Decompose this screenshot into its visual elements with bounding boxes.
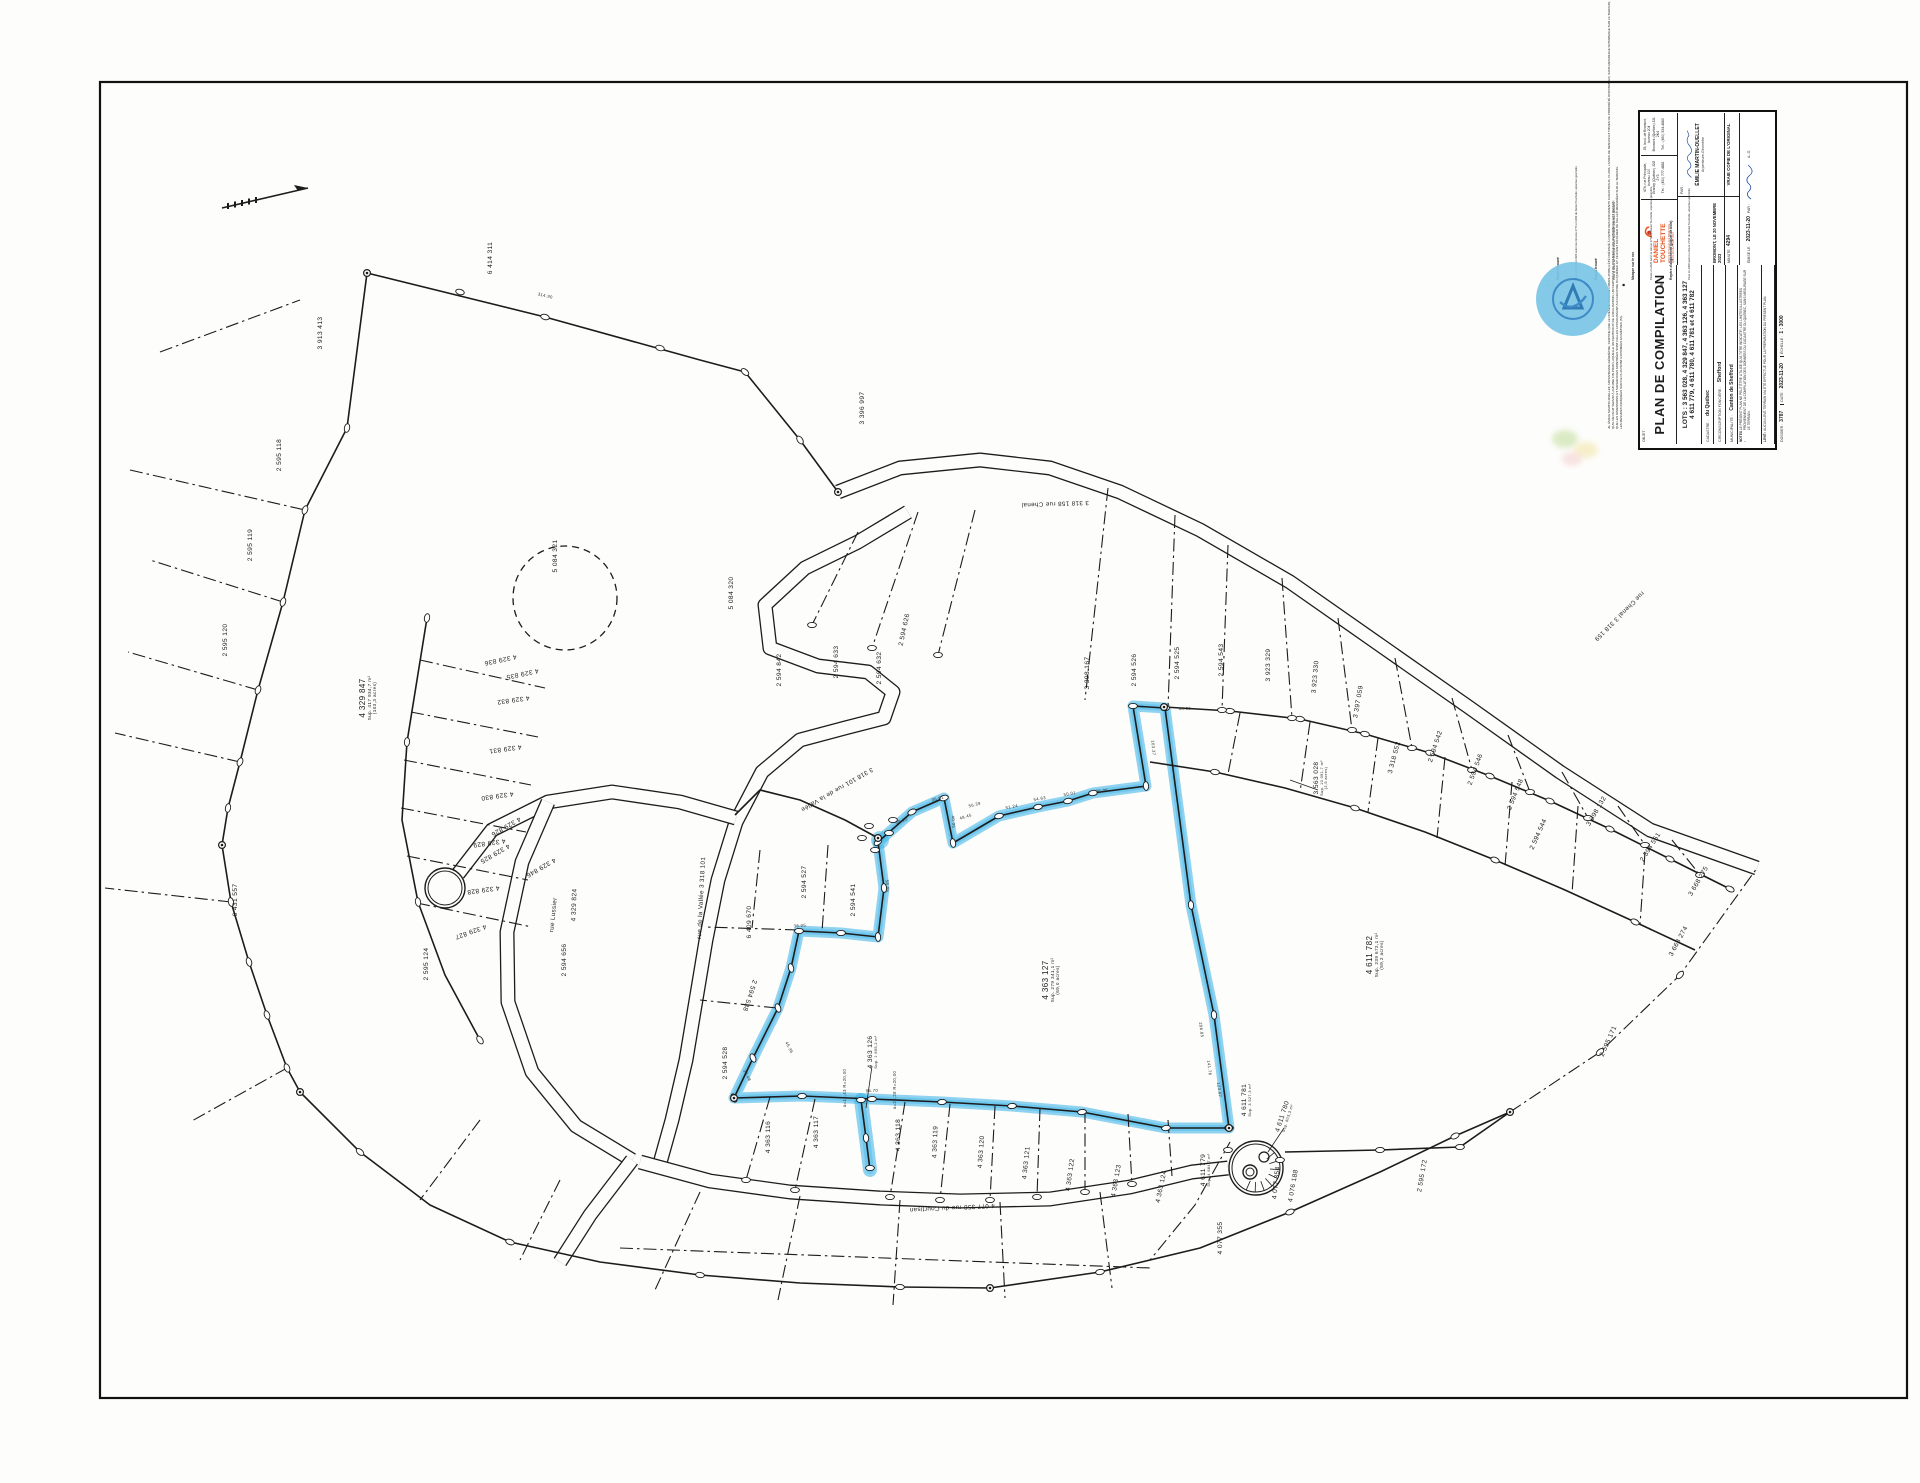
survey-marker <box>934 652 943 657</box>
survey-marker <box>808 622 817 627</box>
lot-number-label: 2 594 842 <box>776 654 783 687</box>
road-surface <box>560 1160 632 1262</box>
legend-item-note: Posé en 2008 selon la minute 2744 de Dan… <box>1688 188 1691 280</box>
lot-number-label: 3 398 167 <box>1084 657 1091 690</box>
lot-number-label: 3 397 059 <box>1352 685 1365 719</box>
boundary-line <box>1150 762 1695 950</box>
survey-marker <box>1295 716 1304 722</box>
lot-number-label: 2 594 543 <box>1218 644 1225 677</box>
survey-marker <box>1225 708 1234 714</box>
highlighted-parcel-outline-core <box>734 706 1229 1128</box>
lot-line-dashdot <box>105 888 231 902</box>
emise-date: 2023-11-20 <box>1746 216 1752 241</box>
survey-post-dot <box>1228 1127 1231 1130</box>
lot-number-label: 2 594 526 <box>1131 654 1138 687</box>
survey-marker <box>1224 1147 1233 1152</box>
lot-line-dashdot <box>128 652 258 690</box>
survey-marker <box>1210 769 1219 775</box>
cadastre-label: CADASTRE : <box>1706 420 1710 442</box>
lot-number-label: 4 363 118 <box>895 1119 902 1151</box>
lot-line-dashdot <box>1228 713 1240 774</box>
survey-post-dot <box>733 1097 736 1100</box>
lot-number-label: 4 363 121 <box>1021 1146 1031 1179</box>
lot-number-label: 2 594 542 <box>1427 730 1444 763</box>
lot-line-dashdot <box>990 1106 995 1200</box>
measurement-label: 94.70 <box>866 1088 879 1093</box>
circonscription-label: CIRCONSCRIPTION FONCIÈRE : <box>1718 387 1722 442</box>
lot-number-label: 6 414 311 <box>487 242 494 274</box>
lot-number-label: 6 431 557 <box>232 884 239 917</box>
lot-number-label: 4 363 117 <box>813 1116 820 1148</box>
lot-line-dashdot <box>115 733 240 762</box>
lots-line1: 3 563 028, 4 329 847, 4 363 126, 4 363 1… <box>1682 281 1689 405</box>
lot-line-dashdot <box>655 1192 700 1290</box>
survey-marker <box>1665 855 1675 864</box>
boundary-line <box>799 842 884 937</box>
survey-post-dot <box>366 272 369 275</box>
lot-line-dashdot <box>160 300 300 352</box>
lot-number-label: 4 611 781Sup. 3 527,3 m² <box>1241 1083 1252 1116</box>
survey-marker <box>1485 772 1495 780</box>
lot-line-dashdot <box>1300 722 1310 792</box>
cul-de-sac-circle <box>425 868 465 908</box>
lot-number-label: 2 595 120 <box>222 624 229 657</box>
survey-marker <box>1129 703 1138 708</box>
boundary-line <box>402 618 480 1040</box>
measurement-label: 123.07 <box>1216 1082 1223 1098</box>
lot-number-label: 2 594 538 <box>741 979 758 1012</box>
lot-number-label: 2 594 544 <box>1529 818 1549 851</box>
plan-title: PLAN DE COMPILATION <box>1652 265 1676 444</box>
survey-post-dot <box>989 1287 992 1290</box>
emise-label: ÉMISE LE : <box>1747 244 1751 263</box>
lot-line-dashdot <box>190 1068 287 1122</box>
emise-suffix: A.-G. <box>1747 150 1751 158</box>
municipalite-value: Canton de Shefford <box>1729 364 1735 410</box>
survey-marker <box>1077 1109 1086 1115</box>
watermark-leaf-pink <box>1562 452 1582 466</box>
certification-paragraph: JE, ÉMILIE MARTIN-OUELLET, ARPENTEURE-GÉ… <box>1608 113 1640 429</box>
survey-marker <box>1605 825 1615 833</box>
lot-number-label: 3 668 274 <box>1668 925 1690 957</box>
lot-number-label: 4 611 779Sup. 4 684,7 m² <box>1200 1153 1211 1186</box>
dossier-label: DOSSIER : <box>1780 422 1784 444</box>
circonscription-value: Shefford <box>1717 362 1723 383</box>
survey-marker <box>791 1187 800 1192</box>
lot-number-label: 4 363 127Sup. 279 341,1 m²(69,0 acres) <box>1041 958 1060 1003</box>
survey-marker <box>404 737 410 746</box>
survey-marker <box>1218 707 1227 712</box>
survey-marker <box>1350 804 1360 811</box>
date-value: 2023-11-20 <box>1779 363 1785 388</box>
street-name-label: rue Lussier <box>548 897 559 933</box>
minute-value: 4294 <box>1726 235 1732 246</box>
survey-marker <box>1007 1103 1016 1109</box>
survey-marker <box>1360 731 1370 738</box>
survey-marker <box>858 835 867 840</box>
survey-marker <box>1450 1132 1460 1141</box>
lots-label: LOTS : <box>1682 407 1689 428</box>
survey-marker <box>863 1133 869 1142</box>
leve-text: AUCUN LEVÉ TERRAIN N'A ÉTÉ EFFECTUÉ POUR… <box>1763 296 1773 431</box>
measurement-label: 141.76 <box>1206 1060 1213 1076</box>
lot-number-label: 4 329 832 <box>496 694 530 706</box>
survey-marker <box>225 803 232 813</box>
pond-outline <box>513 546 617 650</box>
lot-line-dashdot <box>1282 578 1292 718</box>
lot-number-label: 5 084 321 <box>552 540 559 573</box>
certification-line: LES MESURES INDIQUÉES SUR CE PLAN SONT E… <box>1620 113 1624 429</box>
lot-number-label: 2 594 633 <box>833 646 840 679</box>
measurement-label: 46.36 <box>784 1041 794 1055</box>
lot-number-label: 3 318 552 <box>1387 741 1402 775</box>
survey-marker <box>1143 781 1149 790</box>
lots-line2: 4 611 779, 4 611 780, 4 611 781 et 4 611… <box>1689 265 1696 444</box>
scanned-survey-plan: 3 913 4136 414 3112 595 1182 595 1192 59… <box>0 0 1920 1483</box>
survey-post-dot <box>1509 1111 1512 1114</box>
surveyor-seal <box>1536 262 1610 336</box>
minute-label: MINUTE : <box>1727 247 1731 263</box>
road-surface <box>640 1162 1228 1201</box>
lot-number-label: 4 363 120 <box>977 1135 986 1168</box>
survey-marker <box>424 613 431 623</box>
lot-number-label: 4 329 828 <box>466 884 500 896</box>
lot-number-label: 3 563 028Sup. 10 091,7 m²(2,5 acres) <box>1313 760 1328 796</box>
lot-number-label: 4 329 830 <box>480 790 514 802</box>
boundary-line <box>367 273 838 492</box>
survey-marker <box>795 435 804 445</box>
survey-marker <box>1630 918 1640 927</box>
lot-number-label: 2 594 528 <box>722 1047 729 1080</box>
lot-number-label: 2 595 118 <box>276 439 283 471</box>
legend-item-label: Repère d'alignement (piquet de bois) <box>1669 221 1673 280</box>
survey-marker <box>505 1238 515 1246</box>
survey-marker <box>937 1099 946 1105</box>
highlighted-parcel-outline <box>734 706 1229 1128</box>
survey-marker <box>245 957 253 967</box>
lot-number-label: 2 594 527 <box>801 866 808 899</box>
lot-line-dashdot <box>752 850 760 928</box>
survey-marker <box>865 823 874 828</box>
survey-marker <box>1095 1269 1105 1276</box>
survey-marker <box>986 1197 995 1202</box>
lot-line-dashdot <box>404 760 531 785</box>
lot-line-dashdot <box>1338 618 1352 730</box>
lot-line-dashdot <box>795 1099 815 1190</box>
lot-line-dashdot <box>411 712 538 737</box>
survey-marker <box>798 1093 807 1099</box>
echelle-value: 1 : 3000 <box>1779 315 1785 333</box>
lot-line-dashdot <box>1572 806 1578 894</box>
street-name-label: 3 318 101 rue de la Vallée <box>799 766 874 813</box>
survey-marker <box>1288 715 1297 720</box>
boundary-line <box>222 273 367 1092</box>
survey-marker <box>1376 1147 1385 1153</box>
lot-number-label: 4 363 122 <box>1065 1158 1077 1192</box>
legend-symbol-icon: ⊕ <box>1659 282 1695 288</box>
survey-marker <box>1526 789 1535 794</box>
lot-number-label: 4 611 782Sup. 239 672,1 m²(59,2 acres) <box>1365 933 1384 978</box>
boundary-line <box>1285 1112 1510 1152</box>
measurement-label: 36.05 <box>793 923 806 929</box>
survey-marker <box>857 1097 866 1102</box>
survey-post-dot <box>837 491 840 494</box>
survey-marker <box>866 1165 875 1170</box>
survey-marker <box>695 1272 704 1278</box>
title-block-title-band: OBJET : PLAN DE COMPILATION LOTS : 3 563… <box>1641 265 1773 444</box>
survey-marker <box>885 830 894 835</box>
survey-marker <box>875 932 881 941</box>
lot-number-label: 2 595 124 <box>423 948 430 981</box>
lot-line-dashdot <box>620 1248 1150 1268</box>
survey-marker <box>936 1197 945 1202</box>
survey-marker <box>1188 900 1194 909</box>
survey-marker <box>1033 1194 1042 1199</box>
survey-marker <box>895 1284 904 1290</box>
lot-line-dashdot <box>1222 545 1228 710</box>
measurement-label: 44.35 <box>1179 706 1192 711</box>
lot-line-dashdot <box>420 1120 480 1200</box>
survey-marker <box>1348 727 1357 732</box>
lot-line-dashdot <box>1368 738 1378 812</box>
lot-number-label: 2 594 548 <box>1506 778 1525 811</box>
lot-line-dashdot <box>700 1000 777 1008</box>
lot-line-dashdot <box>1037 1108 1040 1197</box>
survey-marker <box>283 1063 291 1073</box>
lot-number-label: 3 923 329 <box>1265 649 1272 682</box>
true-copy: VRAIE COPIE DE L'ORIGINAL <box>1726 123 1731 185</box>
measurement-label: 314.90 <box>537 291 553 299</box>
watermark-leaf-green <box>1552 430 1578 448</box>
lot-number-label: 3 396 997 <box>859 392 866 425</box>
lot-line-dashdot <box>1510 868 1757 1112</box>
lot-number-label: 2 595 171 <box>1599 1025 1619 1058</box>
survey-marker <box>742 1177 751 1182</box>
emise-par-label: PAR : <box>1747 204 1751 213</box>
surveyor-title: Arpenteure-Géomètre <box>1701 115 1705 194</box>
place-date: BROMONT, LE 20 NOVEMBRE 2023 <box>1712 199 1722 263</box>
survey-marker <box>1490 856 1500 864</box>
seal-glyph-icon <box>1550 276 1596 322</box>
survey-marker <box>279 597 287 607</box>
survey-marker <box>1285 1208 1295 1216</box>
street-name-label: 3 318 158 rue Chenal <box>1021 499 1089 508</box>
measurement-label: a=28,28 R=20,00 <box>892 1071 897 1110</box>
cul-de-sac-circle <box>1243 1165 1257 1179</box>
lot-number-label: 4 329 835 <box>505 667 539 681</box>
survey-marker <box>1725 885 1735 894</box>
lot-number-label: 4 363 116 <box>765 1121 772 1153</box>
survey-marker <box>1276 1157 1285 1162</box>
legend-item: ○Repère trouvéPosé en 2018 et 2020 selon… <box>1546 92 1582 288</box>
survey-post-dot <box>1163 706 1166 709</box>
cadastre-value: du Québec <box>1705 390 1711 416</box>
lot-number-label: 2 594 626 <box>898 613 912 647</box>
notes-label: NOTES : <box>1739 431 1760 442</box>
lot-number-label: 4 329 824 <box>570 888 578 921</box>
survey-marker <box>415 897 422 907</box>
lot-number-label: 4 329 847Sup. 417 934,7 m²(103,3 acres) <box>358 676 377 721</box>
lot-line-dashdot <box>1000 1202 1005 1298</box>
survey-marker <box>301 505 309 515</box>
lot-line-dashdot <box>150 560 283 602</box>
lot-line-dashdot <box>130 470 305 510</box>
survey-post-dot <box>877 837 880 840</box>
survey-marker <box>1081 1189 1090 1194</box>
measurement-label: 296.85 <box>1198 1022 1205 1038</box>
survey-marker <box>254 685 262 695</box>
measurement-label: 56.39 <box>968 801 982 809</box>
legend: ○Repère trouvéPosé en 2018 et 2020 selon… <box>1546 92 1606 288</box>
legend-item: ⊕Repère d'alignement (piquet de bois)Pos… <box>1659 92 1695 288</box>
survey-marker <box>1128 1181 1137 1186</box>
survey-marker <box>868 645 877 650</box>
lot-number-label: 4 611 780Sup. 603,3 m² <box>1274 1100 1295 1134</box>
survey-marker <box>1408 745 1417 750</box>
objet-label: OBJET : <box>1642 428 1646 442</box>
measurement-label: a=15,43 R=20,00 <box>842 1069 847 1108</box>
lot-number-label: 2 594 541 <box>850 884 857 917</box>
lot-number-label: 4 329 831 <box>488 743 522 755</box>
survey-marker <box>871 847 880 852</box>
lot-number-label: 3 913 413 <box>317 317 324 350</box>
lot-line-dashdot <box>940 1104 950 1200</box>
leve-label: LEVÉ : <box>1763 432 1773 442</box>
lot-number-label: 5 084 320 <box>728 577 735 610</box>
lot-line-dashdot <box>938 510 975 655</box>
lot-number-label: 3 923 330 <box>1311 660 1321 693</box>
lot-number-label: 4 329 836 <box>483 653 517 667</box>
lot-number-label: 2 595 119 <box>247 529 254 561</box>
lot-number-label: 2 594 632 <box>876 652 883 685</box>
survey-marker <box>263 1010 271 1020</box>
measurement-label: 58.05 <box>885 880 891 893</box>
echelle-label: ÉCHELLE : <box>1780 334 1784 357</box>
measurement-label: 48.45 <box>959 812 973 820</box>
lot-number-label: 4 077 355 <box>1217 1222 1224 1255</box>
survey-post-dot <box>221 844 224 847</box>
survey-marker <box>236 757 244 767</box>
survey-marker <box>1211 1010 1217 1019</box>
measurement-label: 103.37 <box>1150 740 1157 756</box>
date-label: DATE : <box>1780 388 1784 404</box>
survey-marker <box>540 313 550 320</box>
survey-marker <box>1545 797 1555 805</box>
lot-number-label: 2 594 525 <box>1174 647 1181 680</box>
lot-line-dashdot <box>822 845 828 932</box>
survey-marker <box>886 1194 895 1199</box>
survey-marker <box>868 1096 877 1102</box>
survey-marker <box>795 928 804 933</box>
survey-marker <box>837 930 846 935</box>
lot-line-dashdot <box>1437 757 1445 838</box>
lot-number-label: 4 363 126Sup. 1 695,2 m² <box>867 1035 878 1068</box>
municipalite-label: MUNICIPALITÉ : <box>1730 415 1734 442</box>
survey-marker <box>344 423 351 433</box>
survey-marker <box>1456 1144 1465 1150</box>
survey-marker <box>655 344 665 351</box>
dossier-value: 3787 <box>1779 411 1785 422</box>
lot-line-dashdot <box>778 1196 800 1300</box>
legend-item-note: Posée en 2020 selon la minute 3774 de Da… <box>1650 187 1653 280</box>
lot-number-label: 4 363 119 <box>931 1126 939 1159</box>
survey-post-dot <box>299 1091 302 1094</box>
lot-number-label: 4 329 827 <box>454 922 487 940</box>
lot-number-label: 6 409 670 <box>746 906 753 939</box>
survey-marker <box>475 1035 484 1045</box>
signature-small <box>1744 161 1754 201</box>
lot-number-label: 2 594 656 <box>561 944 568 977</box>
notes-text: LE PRÉSENT PLAN NE PEUT ÊTRE UTILISÉ QU'… <box>1739 267 1760 430</box>
lot-number-label: 4 076 188 <box>1287 1169 1300 1203</box>
street-name-label: rue Chenal 3 318 159 <box>1593 590 1646 643</box>
lot-number-label: 2 595 172 <box>1416 1159 1429 1193</box>
